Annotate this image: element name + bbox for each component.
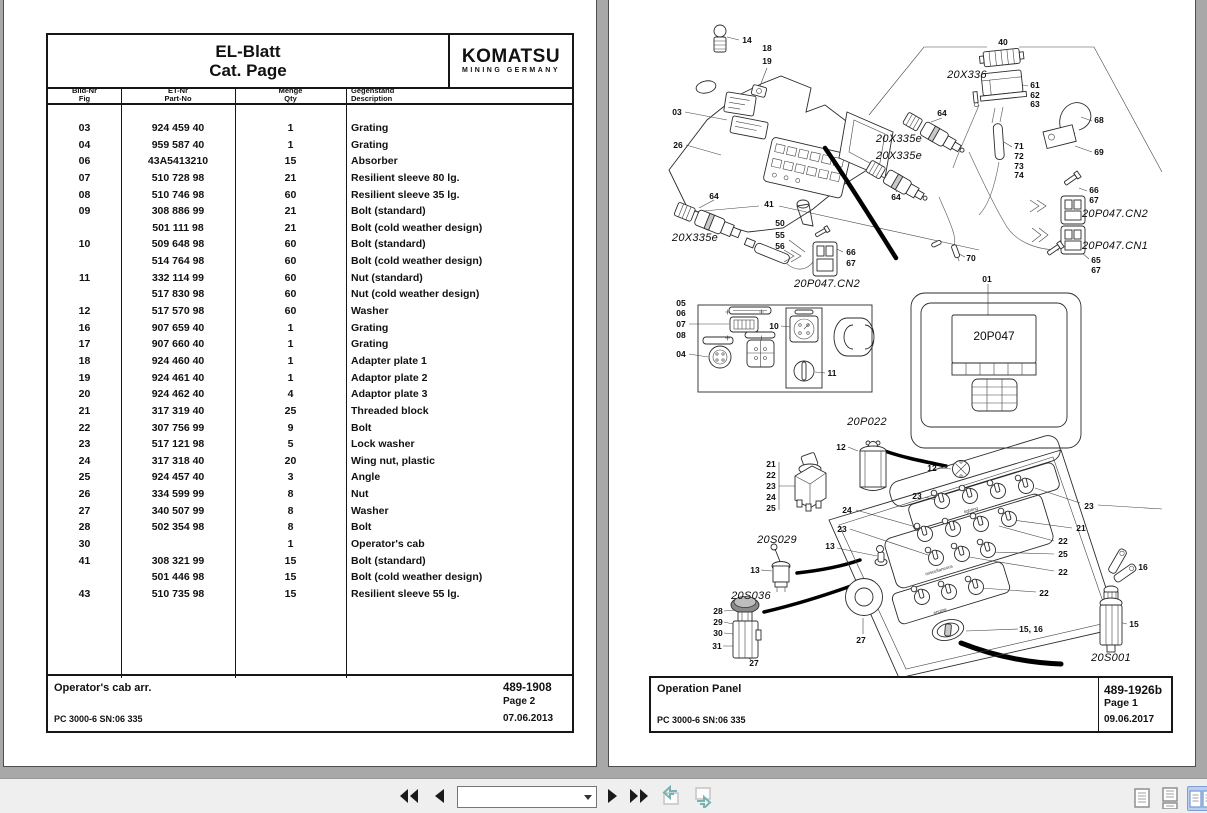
cell-fig: 41 [48,553,121,570]
table-row: 03924 459 401Grating [48,120,572,137]
brand-logo: KOMATSU MINING GERMANY [448,35,572,87]
cell-qty: 21 [235,170,346,187]
monitor-keypad [972,379,1017,411]
cell-qty: 3 [235,469,346,486]
cell-description: Wing nut, plastic [346,453,572,470]
table-row: 24317 318 4020Wing nut, plastic [48,453,572,470]
cell-qty: 15 [235,153,346,170]
last-page-button[interactable] [628,785,650,807]
cell-partno: 510 728 98 [121,170,235,187]
column-header-description: Gegenstand Description [346,87,572,103]
cell-qty: 8 [235,486,346,503]
table-row: 26334 599 998Nut [48,486,572,503]
sheet-date: 07.06.2013 [503,713,553,724]
cell-description: Grating [346,336,572,353]
cell-partno: 924 460 40 [121,353,235,370]
right-triangle-icon [607,788,619,804]
sheet-date: 09.06.2017 [1104,714,1154,725]
cell-fig: 28 [48,519,121,536]
cell-qty: 60 [235,303,346,320]
copy-to-window-button[interactable] [658,784,684,808]
panel-knob [965,576,983,594]
table-row: 517 830 9860Nut (cold weather design) [48,286,572,303]
previous-page-button[interactable] [428,785,450,807]
machine-serial: PC 3000-6 SN:06 335 [54,714,143,724]
diagram-drawing [609,0,1197,676]
cell-fig: 07 [48,170,121,187]
first-page-button[interactable] [398,785,420,807]
cell-partno: 43A5413210 [121,153,235,170]
cell-fig: 16 [48,320,121,337]
table-row: 10509 648 9860Bolt (standard) [48,236,572,253]
cell-fig: 10 [48,236,121,253]
cell-partno: 501 111 98 [121,220,235,237]
hour-meter-27 [846,579,883,616]
panel-knob [1015,475,1033,493]
table-row: 08510 746 9860Resilient sleeve 35 lg. [48,187,572,204]
table-row: 12517 570 9860Washer [48,303,572,320]
cell-description: Grating [346,320,572,337]
sensor-20x335e-2 [865,159,931,205]
machine-serial: PC 3000-6 SN:06 335 [657,715,746,725]
cell-qty: 60 [235,270,346,287]
cell-qty: 4 [235,386,346,403]
table-row: 11332 114 9960Nut (standard) [48,270,572,287]
cell-fig: 24 [48,453,121,470]
cell-fig: 04 [48,137,121,154]
single-page-view-button[interactable] [1131,786,1153,809]
cell-fig [48,220,121,237]
cell-qty: 1 [235,336,346,353]
cell-description: Bolt (standard) [346,553,572,570]
part-button-20s036 [731,597,761,659]
cell-qty: 21 [235,220,346,237]
cell-description: Operator's cab [346,536,572,553]
cell-qty: 5 [235,436,346,453]
plug-item-14 [714,25,726,52]
cylinder-71 [993,123,1004,160]
cell-description: Grating [346,137,572,154]
window-arrow-in-icon [658,784,684,808]
plate-69 [1043,125,1076,149]
table-row: 20924 462 404Adaptor plate 3 [48,386,572,403]
table-row: 22307 756 999Bolt [48,420,572,437]
cell-qty: 25 [235,403,346,420]
cell-fig [48,286,121,303]
cell-description: Adaptor plate 2 [346,370,572,387]
double-right-triangle-icon [629,788,649,804]
cell-fig: 06 [48,153,121,170]
table-row: 07510 728 9821Resilient sleeve 80 lg. [48,170,572,187]
diagram-sheet-footer: Operation Panel PC 3000-6 SN:06 335 489-… [649,676,1173,733]
table-row: 0643A541321015Absorber [48,153,572,170]
panel-knob [938,581,956,599]
page-select-combo[interactable] [457,786,597,808]
cell-fig: 08 [48,187,121,204]
cell-description: Bolt [346,420,572,437]
sheet-footer: Operator's cab arr. 489-1908 Page 2 PC 3… [48,674,572,731]
cell-fig: 12 [48,303,121,320]
keyswitch-11 [794,361,814,381]
part-toggle-20s029 [771,544,790,592]
viewer-window: { "left_page": { "header": { "title_line… [0,0,1207,813]
column-header-fig: Bild-Nr Fig [48,87,121,103]
cell-fig [48,569,121,586]
cell-description: Nut [346,486,572,503]
cell-partno: 924 462 40 [121,386,235,403]
panel-knobs [911,475,1033,604]
cell-fig: 30 [48,536,121,553]
double-left-triangle-icon [399,788,419,804]
cell-description: Resilient sleeve 80 lg. [346,170,572,187]
cell-partno: 340 507 99 [121,503,235,520]
column-header-partno: ET-Nr Part-No [121,87,235,103]
chevron-down-icon [584,795,592,800]
cell-partno: 510 735 98 [121,586,235,603]
connector-detail-box [698,305,874,392]
panel-knob [942,518,960,536]
page-number: Page 1 [1104,697,1138,709]
cell-fig: 21 [48,403,121,420]
column-header-qty: Menge Qty [235,87,346,103]
cell-fig: 22 [48,420,121,437]
footer-divider [1098,678,1099,731]
cell-description: Bolt (cold weather design) [346,220,572,237]
continuous-view-button[interactable] [1159,786,1181,809]
sensor-20x335e-3 [673,201,742,241]
cell-fig: 27 [48,503,121,520]
cell-partno: 959 587 40 [121,137,235,154]
connector-block-cn2-right [1030,171,1085,224]
cell-description: Nut (cold weather design) [346,286,572,303]
monitor-housing [911,293,1081,448]
document-page-left: EL-Blatt Cat. Page KOMATSU MINING GERMAN… [3,0,597,767]
table-row: 19924 461 401Adaptor plate 2 [48,370,572,387]
connector-square [747,340,774,367]
cell-description: Bolt (standard) [346,236,572,253]
brand-name: KOMATSU [462,47,560,66]
table-row: 17907 660 401Grating [48,336,572,353]
cell-fig: 18 [48,353,121,370]
cell-qty: 8 [235,519,346,536]
cell-qty: 1 [235,353,346,370]
cell-fig: 20 [48,386,121,403]
cell-partno: 509 648 98 [121,236,235,253]
cell-partno: 510 746 98 [121,187,235,204]
monitor-screen [952,315,1036,363]
panel-knob [951,543,969,561]
table-row: 301Operator's cab [48,536,572,553]
table-row: 501 446 9815Bolt (cold weather design) [48,569,572,586]
table-row: 16907 659 401Grating [48,320,572,337]
sheet-title: EL-Blatt Cat. Page [48,35,448,87]
table-row: 501 111 9821Bolt (cold weather design) [48,220,572,237]
cell-fig: 23 [48,436,121,453]
cell-qty: 1 [235,320,346,337]
cell-partno: 307 756 99 [121,420,235,437]
panel-knob [977,539,995,557]
table-row: 43510 735 9815Resilient sleeve 55 lg. [48,586,572,603]
cell-partno: 317 318 40 [121,453,235,470]
viewer-toolbar [0,778,1207,813]
sheet-header: EL-Blatt Cat. Page KOMATSU MINING GERMAN… [48,35,572,89]
cell-partno: 924 461 40 [121,370,235,387]
panel-knob [925,547,943,565]
cell-qty: 1 [235,536,346,553]
cell-description: Adaptor plate 3 [346,386,572,403]
panel-knob [970,513,988,531]
cell-qty: 15 [235,586,346,603]
cell-partno: 907 660 40 [121,336,235,353]
cell-description: Resilient sleeve 55 lg. [346,586,572,603]
extension-cylinder [743,238,790,265]
table-row: 28502 354 988Bolt [48,519,572,536]
cell-partno: 924 457 40 [121,469,235,486]
cell-partno: 317 319 40 [121,403,235,420]
table-row: 514 764 9860Bolt (cold weather design) [48,253,572,270]
cell-fig [48,253,121,270]
cell-description: Adapter plate 1 [346,353,572,370]
cell-partno: 514 764 98 [121,253,235,270]
next-page-button[interactable] [602,785,624,807]
parts-table-body: 03924 459 401Grating04959 587 401Grating… [48,107,572,691]
connector-10 [790,316,818,342]
cell-description: Nut (standard) [346,270,572,287]
brand-subtitle: MINING GERMANY [462,66,560,75]
document-page-right: 1418190326646464415055566667406162636869… [608,0,1196,767]
cell-partno [121,536,235,553]
stacked-pages-icon [1162,787,1178,809]
cell-partno: 332 114 99 [121,270,235,287]
cell-qty: 15 [235,553,346,570]
arrangement-title: Operator's cab arr. [54,682,151,694]
cell-description: Bolt (standard) [346,203,572,220]
parts-catalog-sheet: EL-Blatt Cat. Page KOMATSU MINING GERMAN… [46,33,574,733]
two-pages-icon [1189,789,1207,809]
table-row: 21317 319 4025Threaded block [48,403,572,420]
cell-description: Resilient sleeve 35 lg. [346,187,572,204]
cell-qty: 60 [235,236,346,253]
cell-qty: 60 [235,286,346,303]
cell-qty: 20 [235,453,346,470]
cell-fig: 43 [48,586,121,603]
key-switch-15-16 [930,616,966,644]
cell-qty: 1 [235,370,346,387]
document-number: 489-1926b [1104,683,1162,697]
sensor-20x335e-1 [902,111,968,157]
table-row: 23517 121 985Lock washer [48,436,572,453]
cell-qty: 15 [235,569,346,586]
single-page-icon [1134,788,1150,808]
sheet-title-line1: EL-Blatt [215,42,280,61]
cell-description: Lock washer [346,436,572,453]
cell-fig: 19 [48,370,121,387]
panel-knob [959,485,977,503]
table-column-headers: Bild-Nr Fig ET-Nr Part-No Menge Qty Gege… [48,87,572,105]
cell-description: Bolt (cold weather design) [346,253,572,270]
cell-partno: 308 321 99 [121,553,235,570]
page-select-input[interactable] [460,788,582,808]
window-arrow-out-icon [690,784,716,808]
cell-partno: 334 599 99 [121,486,235,503]
pins-70 [931,240,962,262]
cell-partno: 501 446 98 [121,569,235,586]
relay-20x336 [973,48,1027,107]
connector-04 [709,346,731,368]
connector-block-cn1-right [1032,226,1085,257]
part-keyswitch-20s001 [1100,548,1137,652]
table-row: 09308 886 9921Bolt (standard) [48,203,572,220]
part-rotary-21-25 [795,452,826,511]
cell-fig: 25 [48,469,121,486]
cell-description: Threaded block [346,403,572,420]
cell-fig: 11 [48,270,121,287]
cell-partno: 502 354 98 [121,519,235,536]
diagram-title: Operation Panel [657,683,741,695]
cell-partno: 517 570 98 [121,303,235,320]
cell-partno: 924 459 40 [121,120,235,137]
table-row: 04959 587 401Grating [48,137,572,154]
part-20p022 [860,441,886,491]
cell-description: Bolt (cold weather design) [346,569,572,586]
cell-fig: 09 [48,203,121,220]
cell-description: Grating [346,120,572,137]
cell-qty: 1 [235,137,346,154]
cell-description: Washer [346,303,572,320]
cell-qty: 8 [235,503,346,520]
cell-description: Absorber [346,153,572,170]
left-triangle-icon [433,788,445,804]
table-row: 41308 321 9915Bolt (standard) [48,553,572,570]
panel-knob [987,480,1005,498]
knob-12-panel [953,461,970,478]
cell-qty: 21 [235,203,346,220]
table-row: 25924 457 403Angle [48,469,572,486]
document-number: 489-1908 [503,682,552,694]
cell-qty: 60 [235,253,346,270]
cell-partno: 517 830 98 [121,286,235,303]
cell-qty: 1 [235,120,346,137]
send-to-window-button[interactable] [690,784,716,808]
cell-qty: 9 [235,420,346,437]
facing-pages-view-button[interactable] [1187,786,1207,811]
cell-partno: 517 121 98 [121,436,235,453]
cell-description: Angle [346,469,572,486]
cell-description: Bolt [346,519,572,536]
connector-block-cn2-left [784,226,837,276]
table-row: 18924 460 401Adapter plate 1 [48,353,572,370]
cell-partno: 308 886 99 [121,203,235,220]
cell-qty: 60 [235,187,346,204]
cell-description: Washer [346,503,572,520]
panel-knob [911,586,929,604]
panel-knob [998,508,1016,526]
cell-fig: 17 [48,336,121,353]
cell-fig: 26 [48,486,121,503]
cell-partno: 907 659 40 [121,320,235,337]
sheet-title-line2: Cat. Page [209,61,286,80]
cell-fig: 03 [48,120,121,137]
page-number: Page 2 [503,696,535,707]
table-row: 27340 507 998Washer [48,503,572,520]
